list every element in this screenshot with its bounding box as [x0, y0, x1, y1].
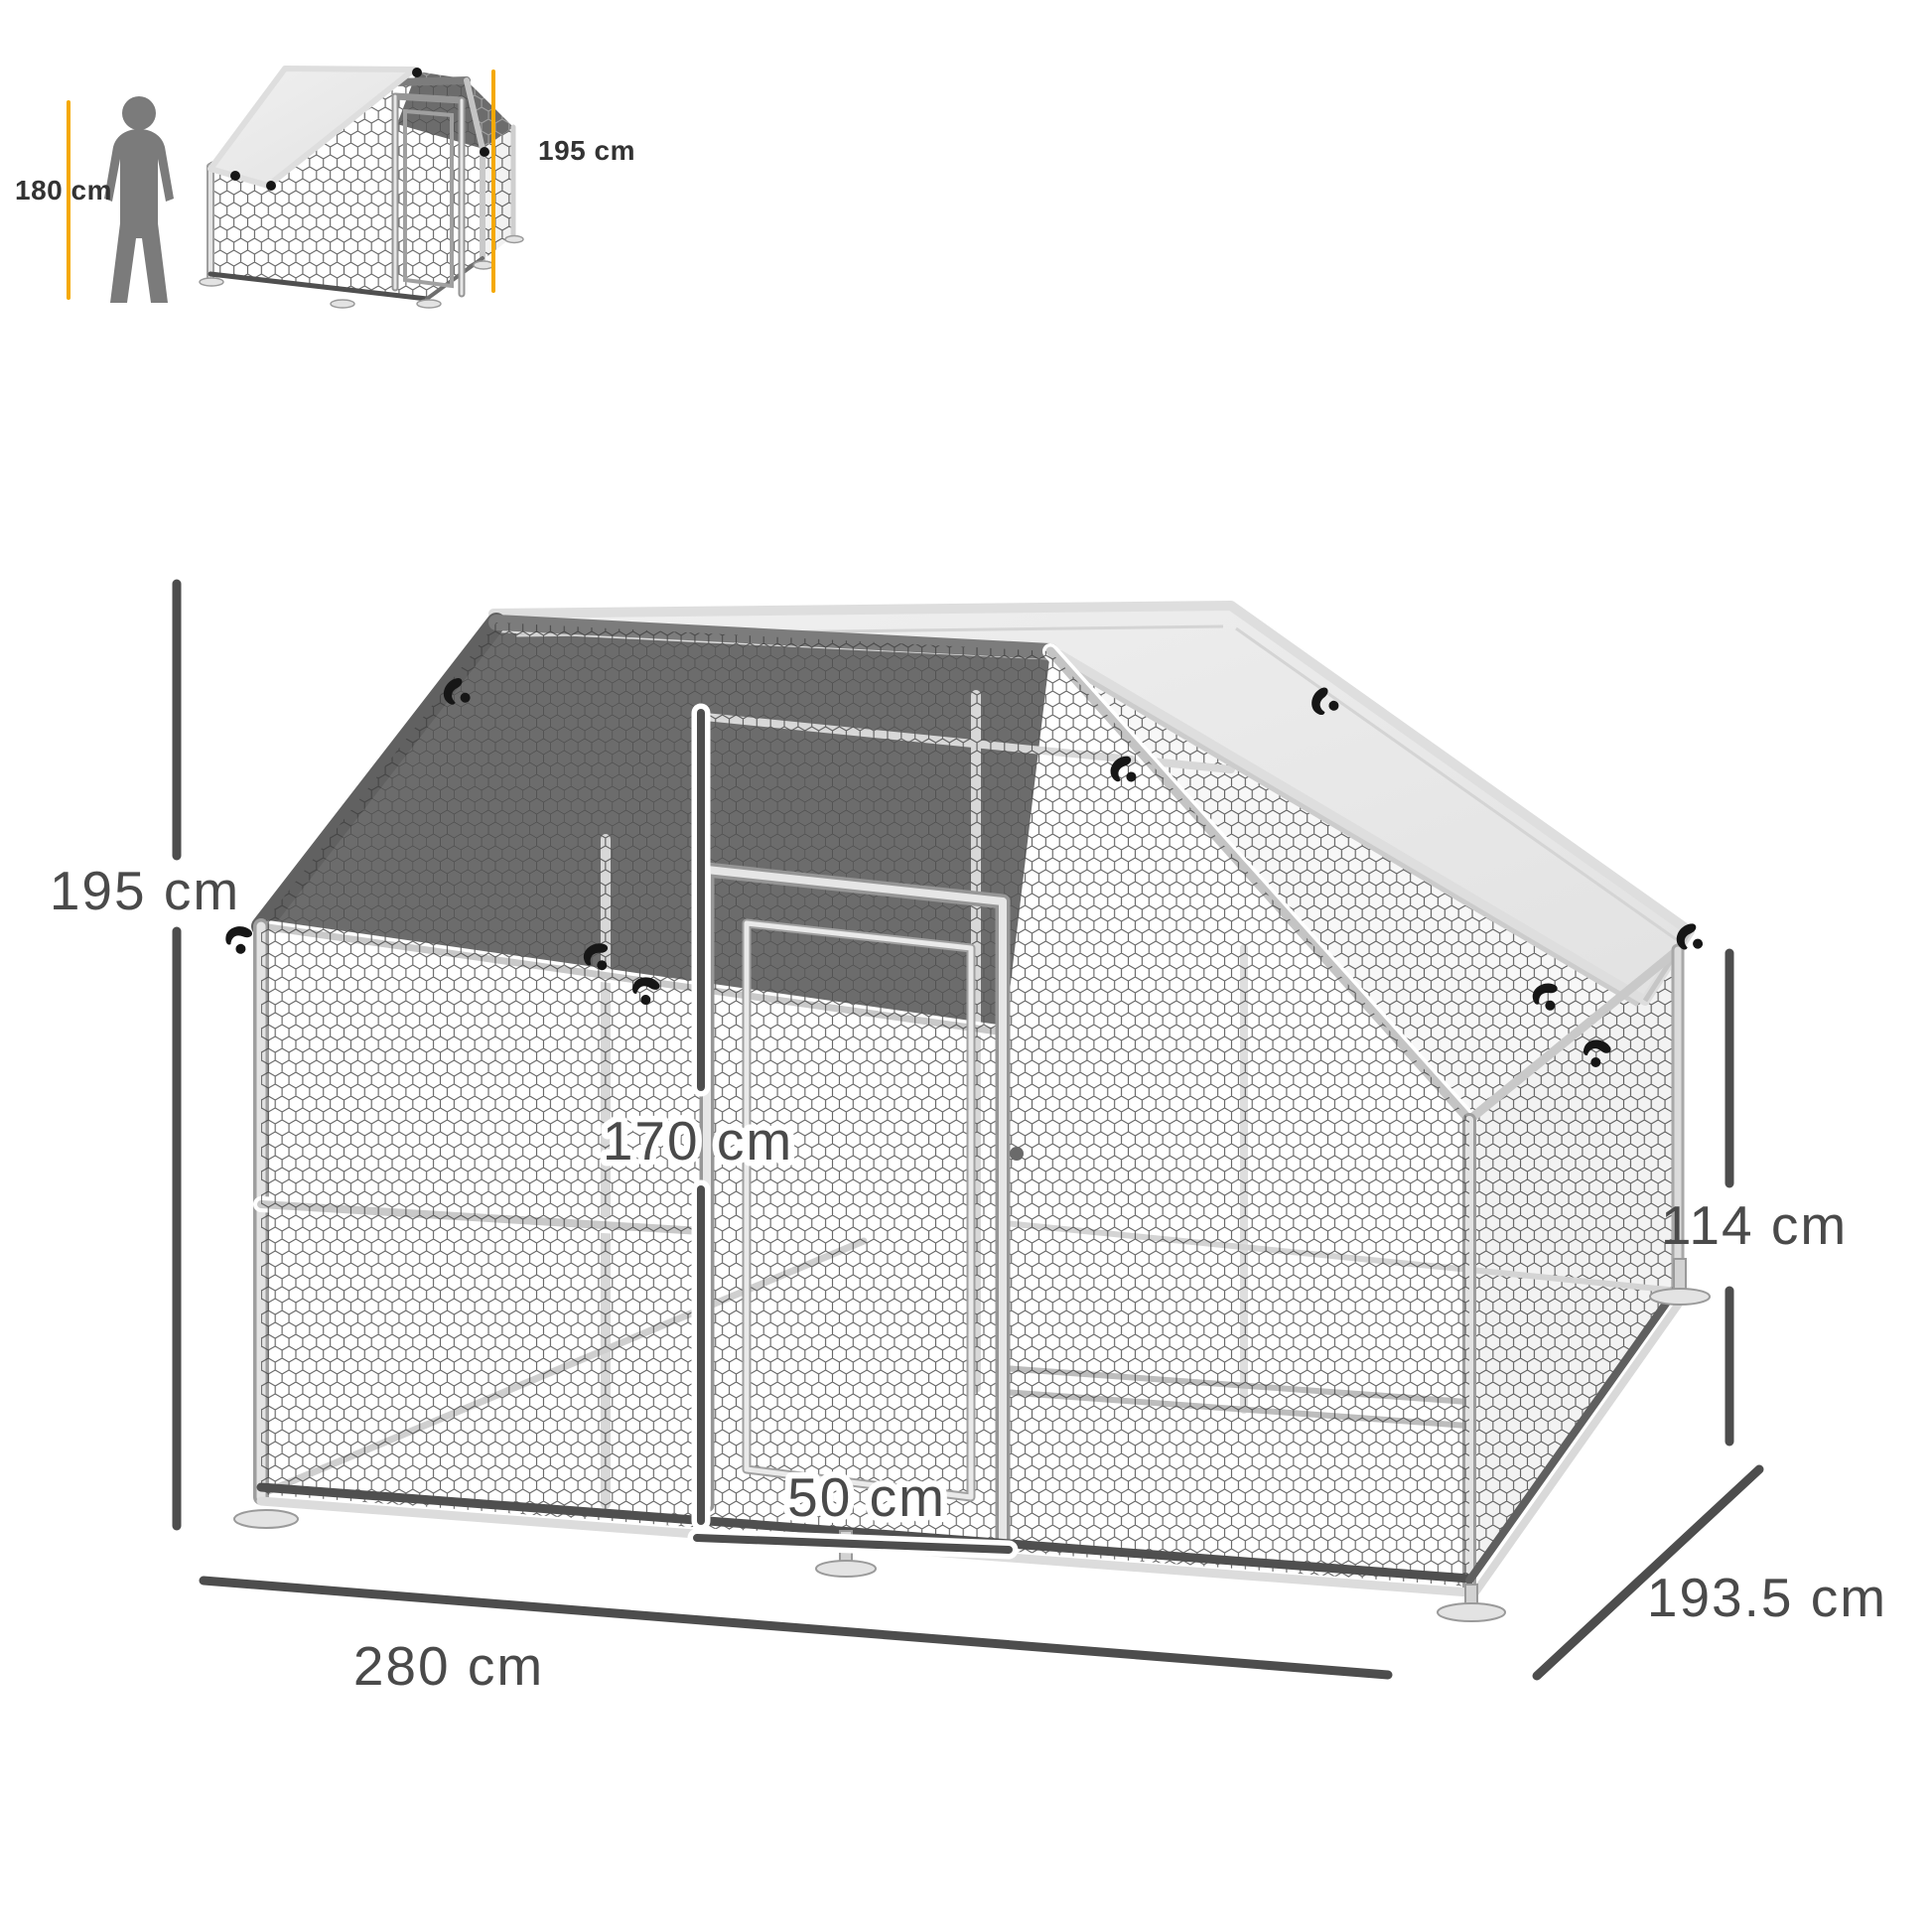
side-wall-height-label: 114 cm [1661, 1194, 1848, 1256]
inset-cage-height-label: 195 cm [538, 135, 635, 166]
depth-label: 193.5 cm [1647, 1567, 1887, 1628]
door-width-label: 50 cm [787, 1466, 946, 1528]
width-label: 280 cm [353, 1635, 544, 1697]
total-height-label: 195 cm [50, 860, 240, 921]
diagram-canvas: 195 cm 170 cm 50 cm 280 cm 193.5 cm [0, 0, 1932, 1932]
person-height-label: 180 cm [15, 175, 112, 206]
door-height-label: 170 cm [603, 1110, 793, 1172]
door-latch [1010, 1147, 1024, 1161]
product-dimension-diagram: 195 cm 170 cm 50 cm 280 cm 193.5 cm [0, 0, 1932, 1932]
